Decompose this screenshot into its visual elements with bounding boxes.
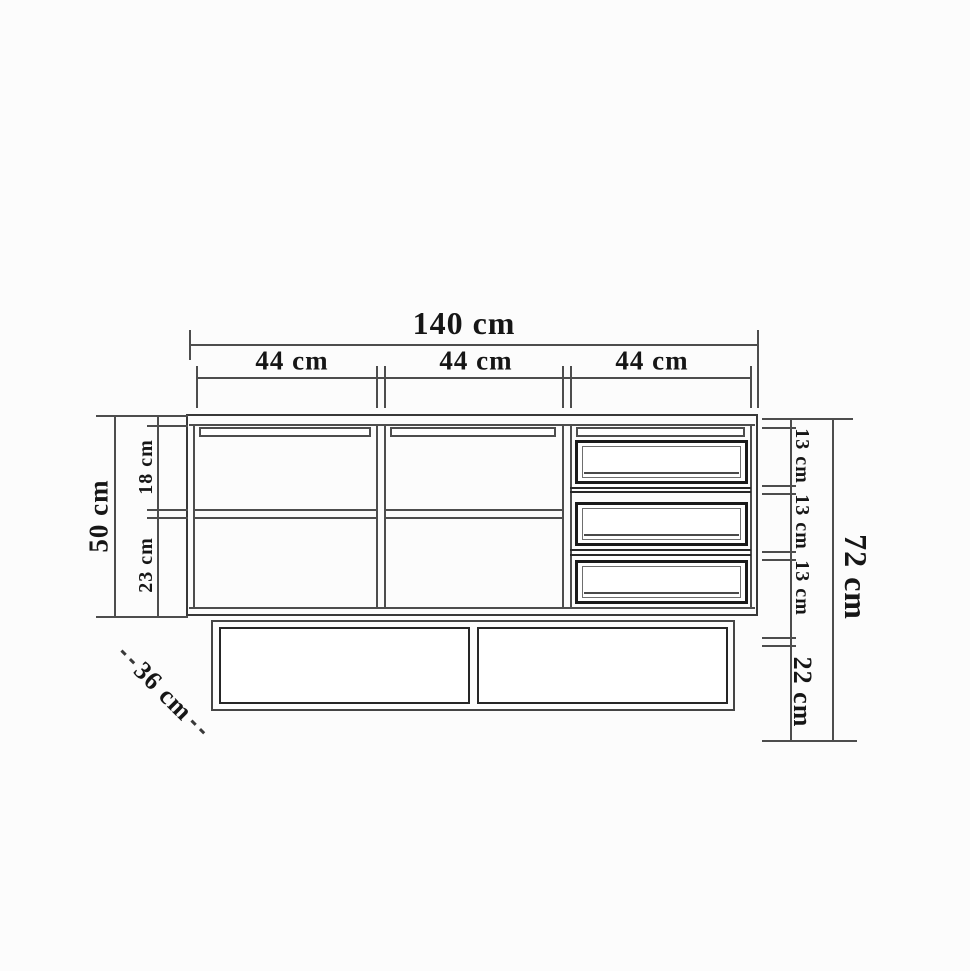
base-left-compartment bbox=[219, 627, 470, 704]
top-rail-section-2 bbox=[390, 427, 556, 437]
drawer-1 bbox=[575, 440, 748, 484]
shelf-section-2-line-a bbox=[384, 509, 562, 511]
top-rail-section-1 bbox=[199, 427, 371, 437]
dim-tick-sections-4 bbox=[750, 366, 752, 408]
dim-tick-sections-1 bbox=[196, 366, 198, 408]
top-rail-section-3 bbox=[576, 427, 745, 437]
dim-tick-base-top-a bbox=[762, 637, 796, 639]
dim-tick-drawer-2-bottom bbox=[762, 551, 796, 553]
depth-dash-trailing bbox=[191, 719, 206, 734]
dim-tick-body-height-top bbox=[96, 415, 188, 417]
dim-tick-shelf-a bbox=[147, 509, 188, 511]
dim-tick-sections-3b bbox=[570, 366, 572, 408]
dim-label-body-height: 50 cm bbox=[86, 479, 113, 552]
dim-tick-right-bottom bbox=[762, 740, 857, 742]
drawer-2-handle bbox=[584, 534, 739, 536]
dim-tick-base-top-b bbox=[762, 645, 796, 647]
drawer-separator-1-line-b bbox=[570, 491, 751, 493]
dim-tick-right-top bbox=[762, 418, 853, 420]
dim-label-section-2: 44 cm bbox=[439, 348, 512, 375]
body-right-panel-line bbox=[750, 425, 752, 608]
dim-label-depth: 36 cm bbox=[129, 657, 197, 725]
dim-tick-drawer-1-bottom bbox=[762, 485, 796, 487]
body-bottom-panel-line bbox=[189, 607, 755, 609]
dim-label-lower-compartment: 23 cm bbox=[136, 537, 156, 593]
dim-line-sections bbox=[196, 377, 750, 379]
divider-2-line-a bbox=[562, 425, 564, 608]
base-right-compartment bbox=[477, 627, 728, 704]
dim-line-total-height bbox=[832, 418, 834, 740]
dim-tick-shelf-b bbox=[147, 517, 188, 519]
divider-2-line-b bbox=[570, 425, 572, 608]
dim-tick-sections-2a bbox=[376, 366, 378, 408]
body-top-panel-line bbox=[189, 424, 755, 426]
dim-label-total-width: 140 cm bbox=[413, 307, 516, 339]
dim-label-section-3: 44 cm bbox=[615, 348, 688, 375]
drawer-separator-1-line-a bbox=[570, 487, 751, 489]
drawer-3-handle bbox=[584, 592, 739, 594]
dim-tick-body-height-bottom bbox=[96, 616, 188, 618]
dim-label-section-1: 44 cm bbox=[255, 348, 328, 375]
drawer-2 bbox=[575, 502, 748, 546]
dim-label-drawer-3: 13 cm bbox=[792, 560, 812, 616]
dim-label-base-height: 22 cm bbox=[789, 657, 815, 728]
dim-label-upper-compartment: 18 cm bbox=[136, 439, 156, 495]
drawer-separator-2-line-a bbox=[570, 549, 751, 551]
dim-line-compartments bbox=[157, 415, 159, 616]
shelf-section-1-line-b bbox=[193, 517, 376, 519]
depth-indicator: 36 cm bbox=[113, 641, 214, 742]
divider-1-line-a bbox=[376, 425, 378, 608]
dim-label-drawer-1: 13 cm bbox=[792, 428, 812, 484]
drawer-separator-2-line-b bbox=[570, 554, 751, 556]
dim-tick-sections-3a bbox=[562, 366, 564, 408]
dim-label-total-height: 72 cm bbox=[840, 534, 872, 620]
shelf-section-1-line-a bbox=[193, 509, 376, 511]
dim-tick-total-width-right bbox=[757, 330, 759, 408]
dim-tick-upper-compartment-top bbox=[147, 425, 188, 427]
drawer-3 bbox=[575, 560, 748, 604]
dim-label-drawer-2: 13 cm bbox=[792, 494, 812, 550]
furniture-dimension-drawing: 140 cm 44 cm 44 cm 44 cm 50 cm 18 cm 23 … bbox=[0, 0, 970, 971]
dim-tick-sections-2b bbox=[384, 366, 386, 408]
depth-dash-leading bbox=[121, 649, 136, 664]
dim-line-body-height bbox=[114, 415, 116, 616]
drawer-1-handle bbox=[584, 472, 739, 474]
dim-tick-total-width-left bbox=[189, 330, 191, 360]
shelf-section-2-line-b bbox=[384, 517, 562, 519]
